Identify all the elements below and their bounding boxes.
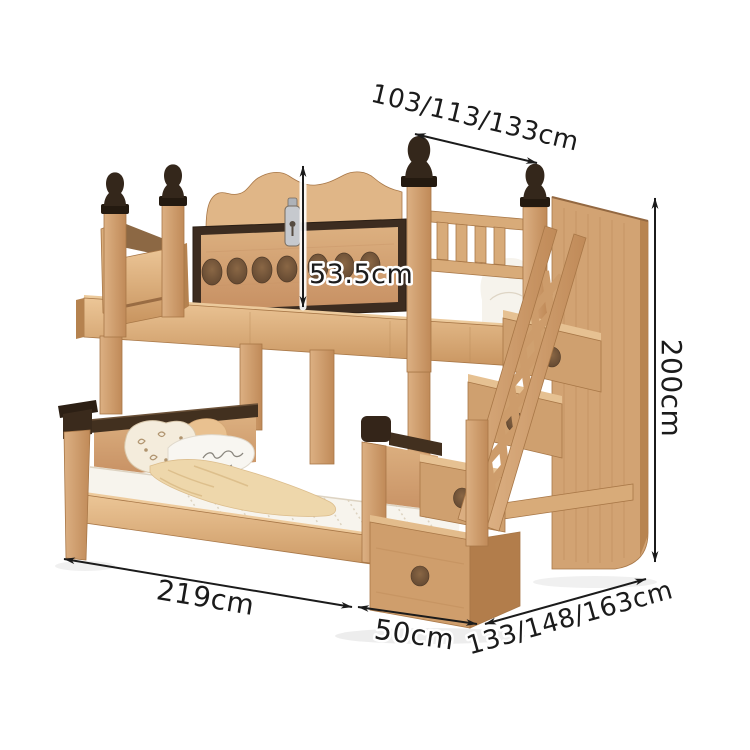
handrail-post (466, 420, 488, 546)
dim-top-width: 103/113/133cm (368, 79, 582, 163)
product-dimension-diagram: 103/113/133cm 53.5cm 200cm 219cm 50cm 13… (0, 0, 750, 750)
dim-top-width-label: 103/113/133cm (368, 79, 582, 158)
bunk-bed-illustration: 103/113/133cm 53.5cm 200cm 219cm 50cm 13… (0, 0, 750, 750)
front-left-leg (64, 430, 90, 560)
slatted-guardrail (431, 211, 523, 279)
dim-guardrail-height-label: 53.5cm (309, 259, 413, 290)
dim-overall-height: 200cm (655, 198, 688, 562)
bunk-bed (55, 136, 657, 644)
dim-bed-length-label: 219cm (154, 573, 257, 622)
dim-overall-height-label: 200cm (655, 339, 688, 438)
